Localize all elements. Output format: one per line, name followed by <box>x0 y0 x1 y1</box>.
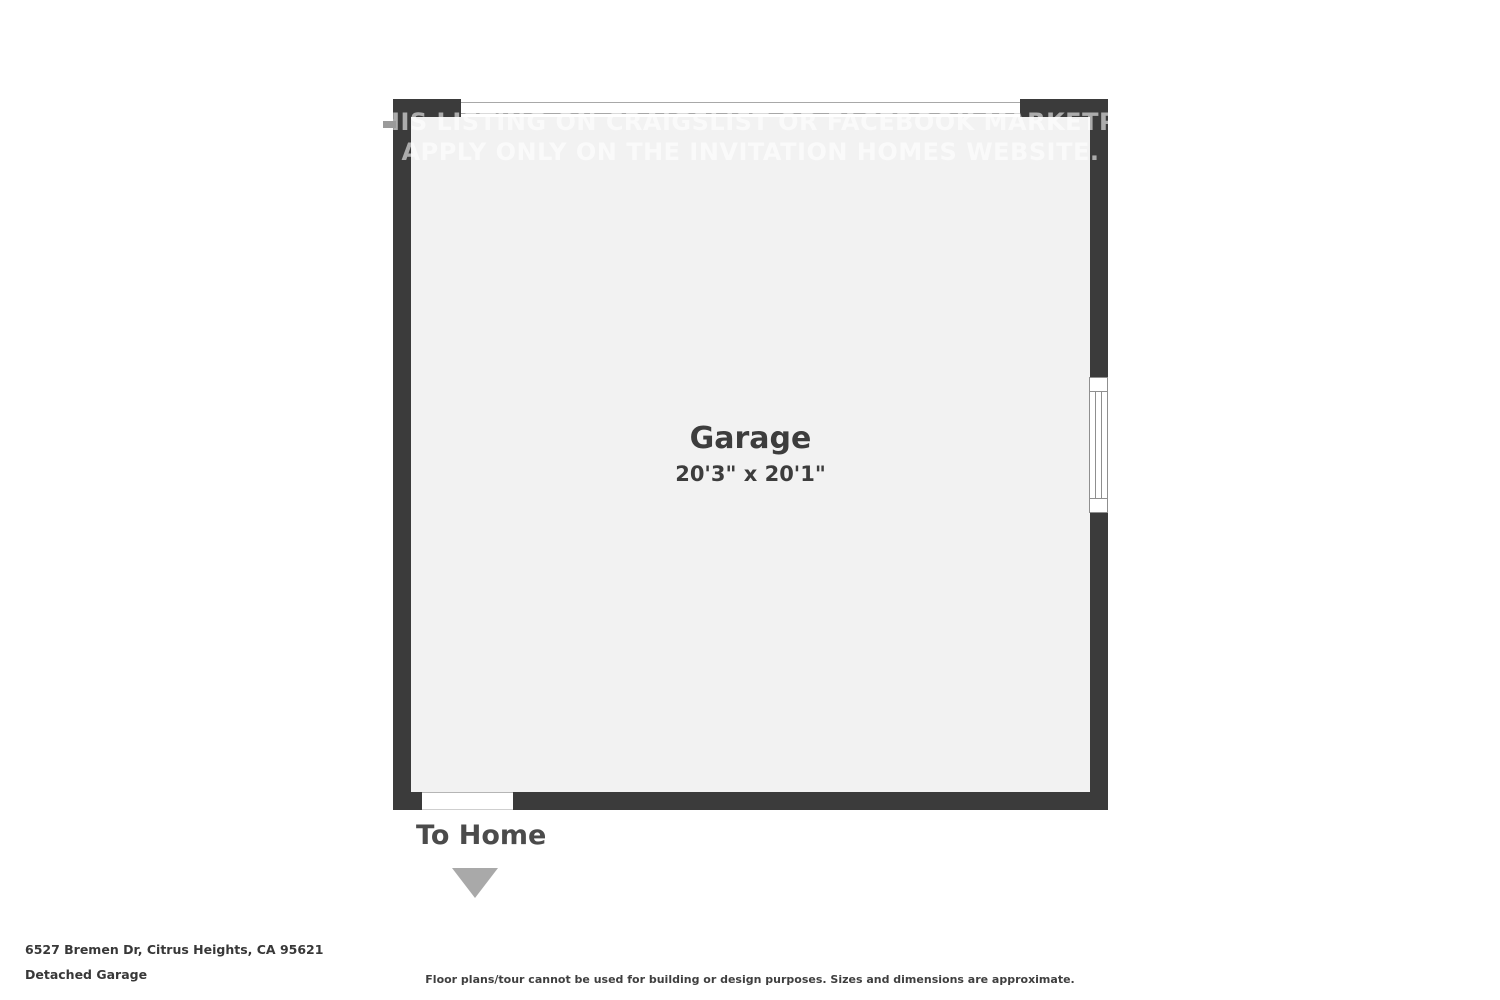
room-dimensions: 20'3" x 20'1" <box>393 462 1108 486</box>
garage-door-line <box>461 113 1020 114</box>
window-sash-line <box>1090 391 1107 392</box>
window-sash-line <box>1090 498 1107 499</box>
garage-door-opening <box>461 99 1020 117</box>
room-name: Garage <box>393 421 1108 456</box>
garage-door-line <box>461 102 1020 103</box>
watermark-fragment <box>383 121 396 128</box>
arrow-down-icon <box>452 868 498 898</box>
disclaimer: Floor plans/tour cannot be used for buil… <box>0 973 1500 986</box>
room-label: Garage 20'3" x 20'1" <box>393 421 1108 486</box>
to-home-label: To Home <box>416 820 546 851</box>
floor-plan-page: THIS LISTING ON CRAIGSLIST OR FACEBOOK M… <box>0 0 1500 1000</box>
address-line: 6527 Bremen Dr, Citrus Heights, CA 95621 <box>25 942 323 957</box>
floor-plan: THIS LISTING ON CRAIGSLIST OR FACEBOOK M… <box>393 99 1108 810</box>
door-opening-to-home <box>422 792 513 810</box>
